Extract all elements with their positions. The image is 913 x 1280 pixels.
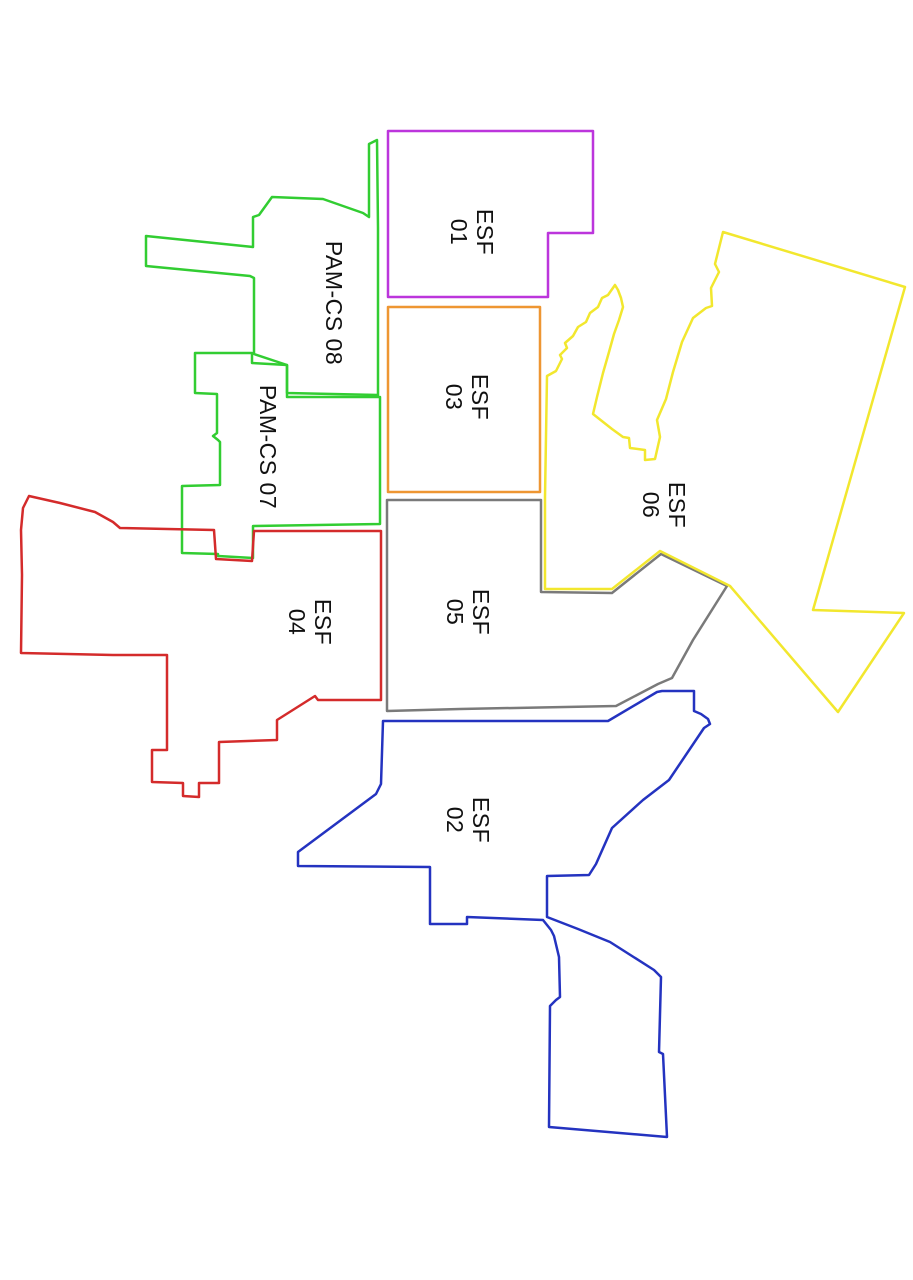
- region-outline-esf-06: [545, 232, 905, 712]
- region-label-line: PAM-CS 07: [254, 385, 280, 509]
- region-label-pam-cs-08: PAM-CS 08: [320, 241, 346, 365]
- region-label-esf-05: ESF05: [441, 589, 493, 635]
- region-label-line: 02: [441, 797, 467, 843]
- region-label-line: ESF: [471, 209, 497, 255]
- region-label-esf-04: ESF04: [283, 599, 335, 645]
- region-label-line: ESF: [663, 482, 689, 528]
- region-label-esf-01: ESF01: [445, 209, 497, 255]
- region-label-line: ESF: [309, 599, 335, 645]
- region-label-esf-02: ESF02: [441, 797, 493, 843]
- district-map: ESF01ESF03PAM-CS 08PAM-CS 07ESF04ESF05ES…: [0, 0, 913, 1280]
- region-label-pam-cs-07: PAM-CS 07: [254, 385, 280, 509]
- region-outline-pam-cs-07: [182, 353, 380, 558]
- region-label-esf-06: ESF06: [637, 482, 689, 528]
- region-label-line: 01: [445, 209, 471, 255]
- region-outline-esf-05: [387, 500, 727, 711]
- region-label-line: PAM-CS 08: [320, 241, 346, 365]
- region-label-line: 06: [637, 482, 663, 528]
- region-label-line: ESF: [467, 589, 493, 635]
- district-map-svg: [0, 0, 913, 1280]
- region-label-line: ESF: [466, 374, 492, 420]
- region-label-line: ESF: [467, 797, 493, 843]
- region-label-line: 05: [441, 589, 467, 635]
- region-label-line: 04: [283, 599, 309, 645]
- region-outline-esf-04: [21, 496, 381, 797]
- region-label-line: 03: [440, 374, 466, 420]
- region-outline-esf-02: [298, 691, 710, 1137]
- region-label-esf-03: ESF03: [440, 374, 492, 420]
